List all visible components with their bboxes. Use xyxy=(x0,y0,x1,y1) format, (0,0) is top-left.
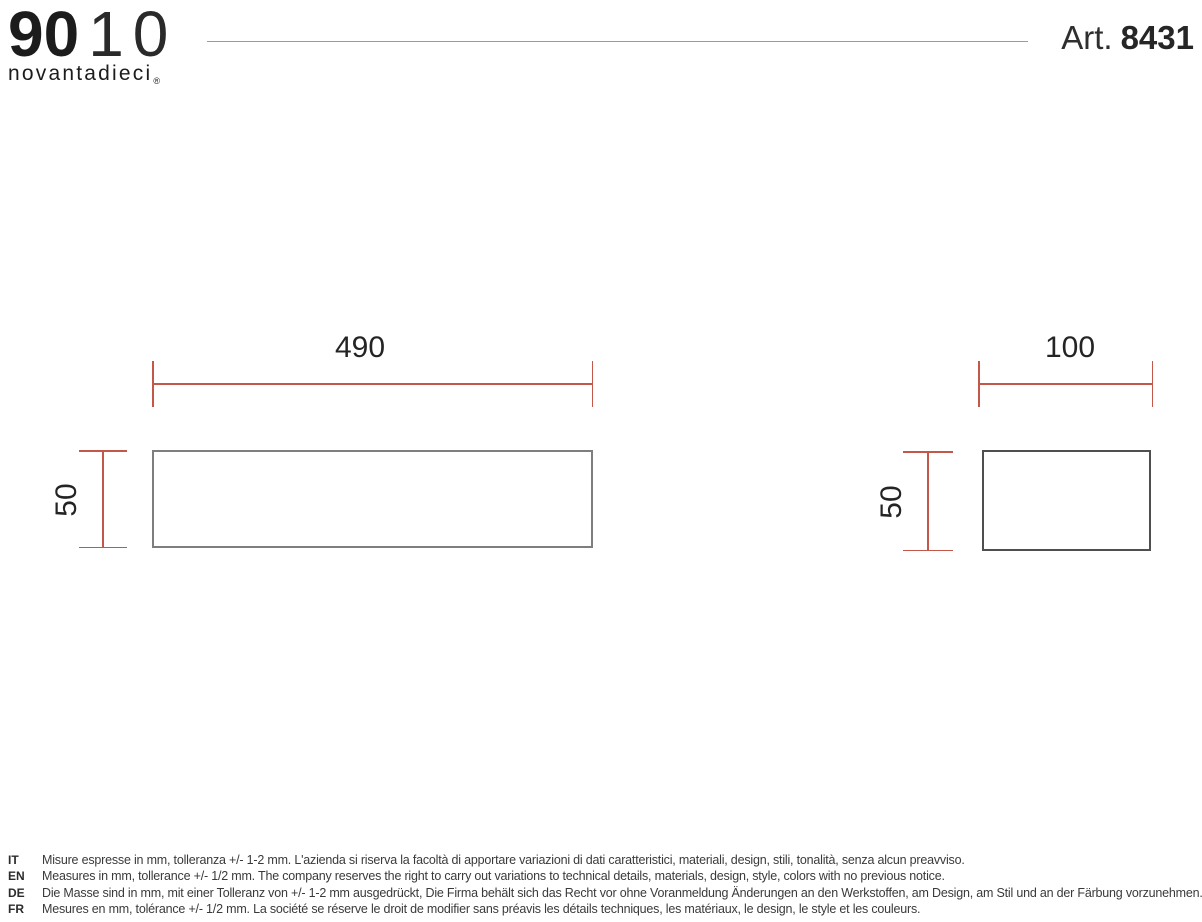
front-width-dimension-line xyxy=(152,361,593,407)
datasheet-page: { "header": { "logo_bold": "90", "logo_t… xyxy=(0,0,1202,922)
logo-numeral-zero: 0 xyxy=(133,0,169,70)
article-title: Art.8431 xyxy=(1061,21,1194,54)
note-lang-label: FR xyxy=(8,902,42,916)
side-height-dimension-label: 50 xyxy=(877,472,905,532)
logo-numerals: 9010 xyxy=(8,2,168,66)
note-text: Misure espresse in mm, tolleranza +/- 1-… xyxy=(42,853,965,867)
side-height-dimension-line xyxy=(903,451,953,551)
front-view-outline xyxy=(152,450,593,548)
registered-mark: ® xyxy=(153,76,160,86)
dimension-cap-bottom xyxy=(79,547,127,549)
note-row-de: DE Die Masse sind in mm, mit einer Tolle… xyxy=(8,886,1202,902)
logo-subtitle-text: novantadieci xyxy=(8,62,152,85)
front-height-dimension-line xyxy=(79,450,127,548)
note-text: Mesures en mm, tolérance +/- 1/2 mm. La … xyxy=(42,902,920,916)
logo-numeral-one: 1 xyxy=(88,0,124,70)
dimension-tick-right xyxy=(1152,361,1154,407)
note-lang-label: DE xyxy=(8,886,42,900)
note-text: Die Masse sind in mm, mit einer Tolleran… xyxy=(42,886,1202,900)
side-view-outline xyxy=(982,450,1151,551)
logo-subtitle: novantadieci® xyxy=(8,62,168,86)
dimension-line xyxy=(978,383,1153,385)
note-text: Measures in mm, tollerance +/- 1/2 mm. T… xyxy=(42,869,945,883)
note-row-en: EN Measures in mm, tollerance +/- 1/2 mm… xyxy=(8,869,1202,885)
article-number: 8431 xyxy=(1121,19,1194,56)
brand-logo: 9010 novantadieci® xyxy=(8,2,168,86)
notes-section: IT Misure espresse in mm, tolleranza +/-… xyxy=(8,853,1202,918)
side-width-dimension-label: 100 xyxy=(1010,333,1130,363)
note-lang-label: EN xyxy=(8,869,42,883)
dimension-line xyxy=(102,450,104,548)
note-row-it: IT Misure espresse in mm, tolleranza +/-… xyxy=(8,853,1202,869)
side-width-dimension-line xyxy=(978,361,1153,407)
header-divider xyxy=(207,41,1028,42)
front-height-dimension-label: 50 xyxy=(52,470,80,530)
logo-numerals-bold: 90 xyxy=(8,0,79,70)
dimension-cap-bottom xyxy=(903,550,953,552)
dimension-tick-right xyxy=(592,361,594,407)
dimension-line xyxy=(927,451,929,551)
note-lang-label: IT xyxy=(8,853,42,867)
note-row-fr: FR Mesures en mm, tolérance +/- 1/2 mm. … xyxy=(8,902,1202,918)
front-width-dimension-label: 490 xyxy=(300,333,420,363)
article-label: Art. xyxy=(1061,19,1112,56)
dimension-line xyxy=(152,383,593,385)
